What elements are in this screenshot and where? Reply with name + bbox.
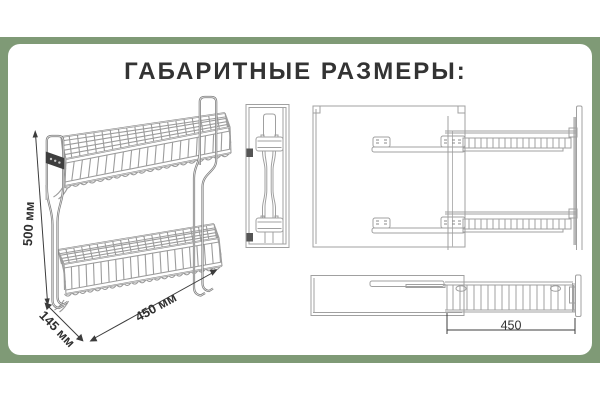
svg-text:500 мм: 500 мм <box>20 201 37 246</box>
svg-text:450: 450 <box>501 319 522 333</box>
svg-text:450 мм: 450 мм <box>133 290 179 325</box>
svg-text:145 мм: 145 мм <box>36 308 78 350</box>
